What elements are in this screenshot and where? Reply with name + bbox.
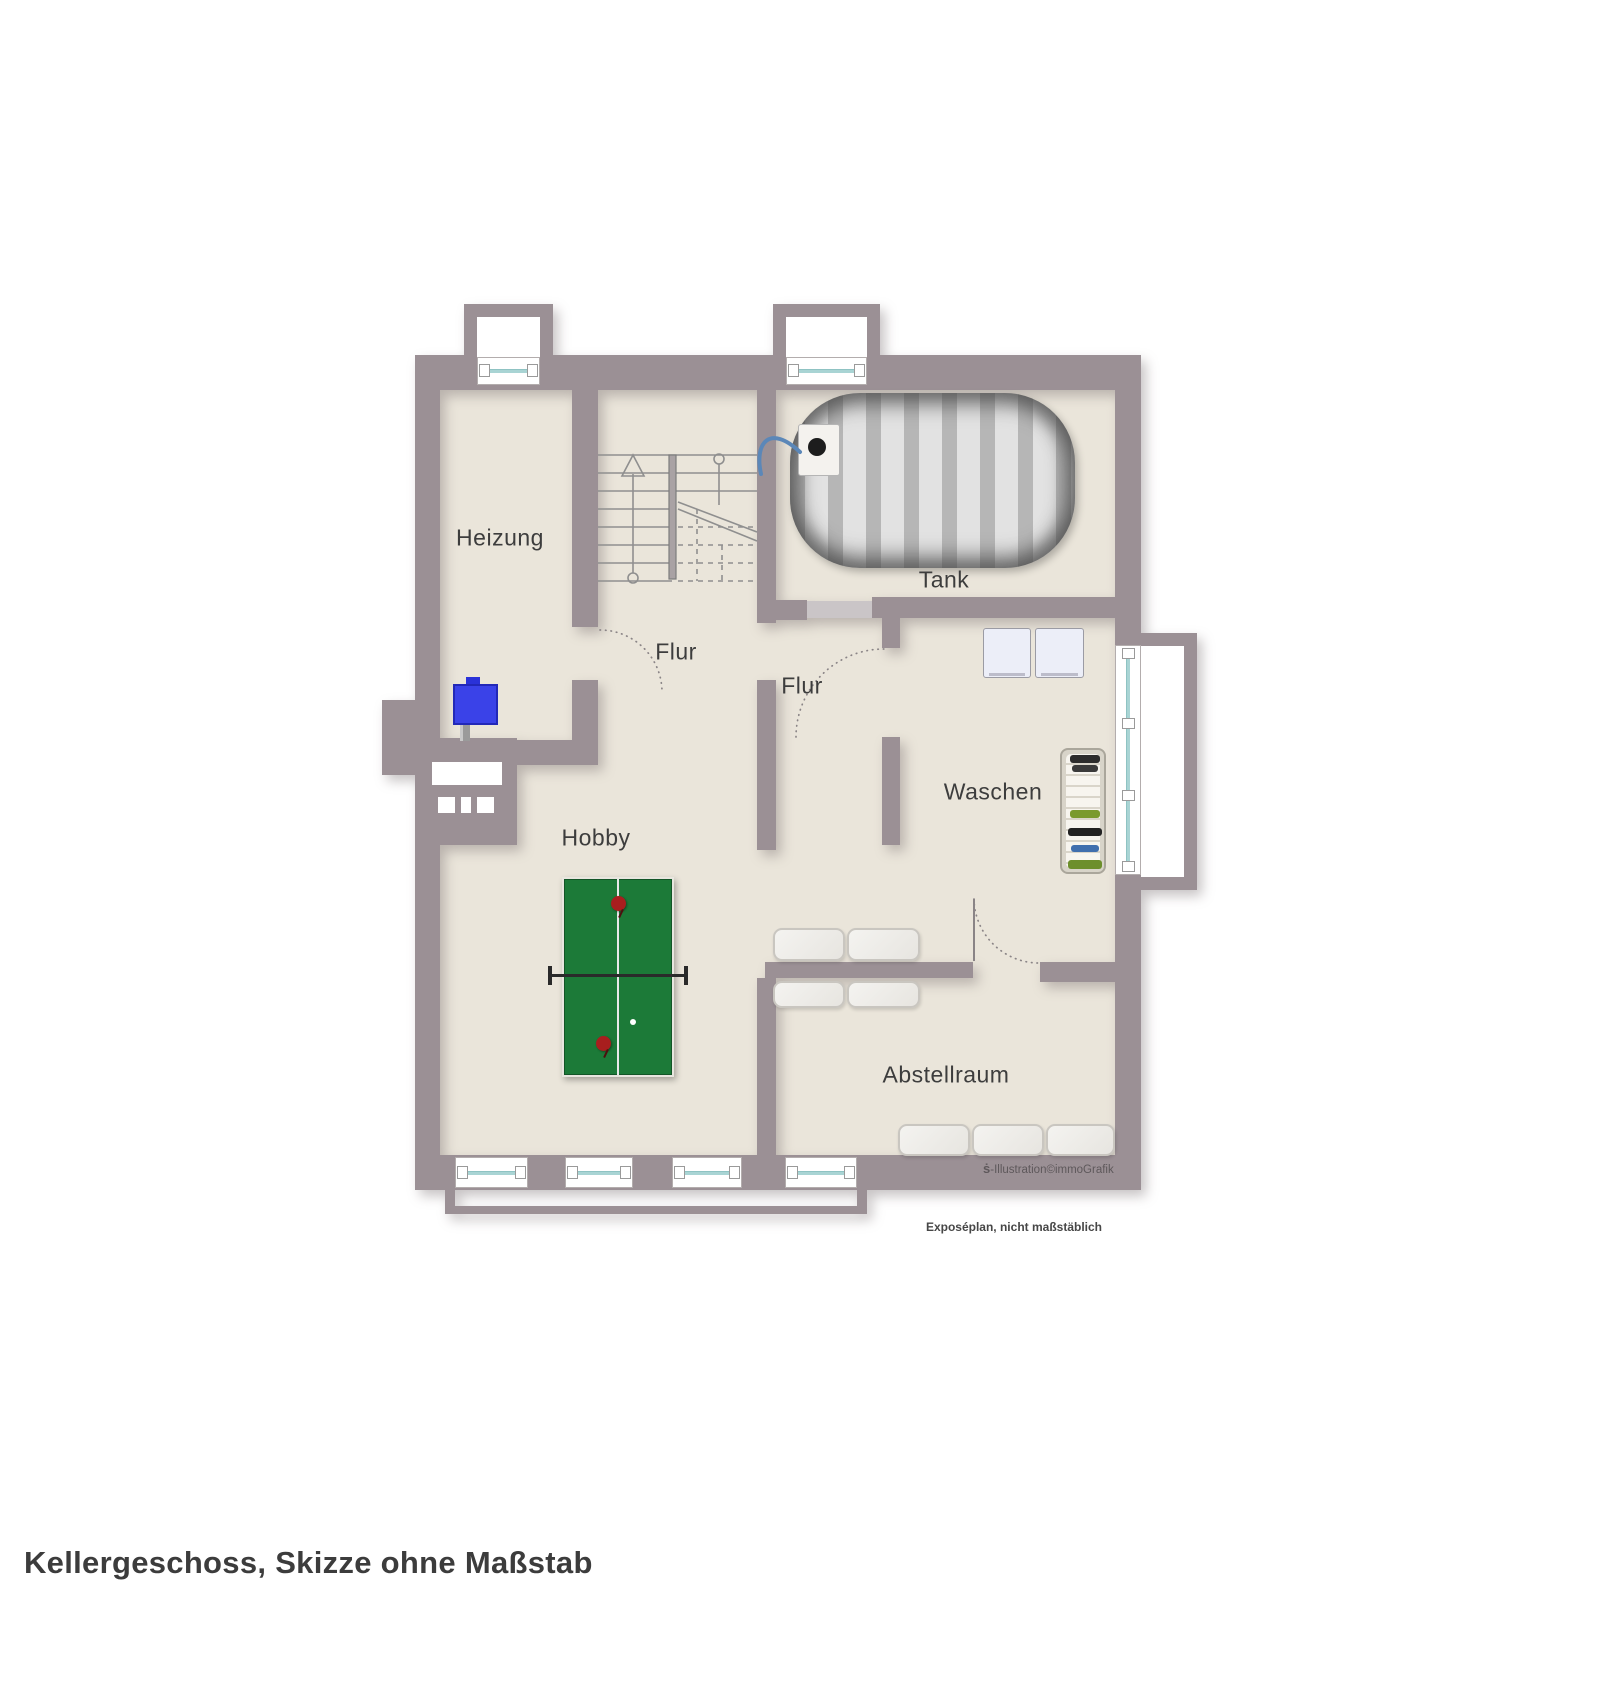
table-net <box>550 974 686 977</box>
oil-tank <box>790 393 1075 568</box>
floor-plan-page: Heizung Flur Flur Tank Waschen Hobby Abs… <box>0 0 1600 1697</box>
window-mullion <box>729 1166 740 1179</box>
lightwell3-right <box>1184 633 1197 890</box>
shoes-green <box>1068 860 1102 869</box>
wall-right-lower <box>1115 875 1141 1190</box>
shoes-dark <box>1070 755 1100 763</box>
wall-stair-left <box>572 390 598 627</box>
window-mullion <box>854 364 865 377</box>
lightwell2-top <box>773 304 880 317</box>
shoes-dark <box>1068 828 1102 836</box>
watermark-text: -Illustration©immoGrafik <box>990 1164 1114 1176</box>
window-bottom-3 <box>672 1157 742 1188</box>
window-mullion <box>479 364 490 377</box>
room-label-flur-upper: Flur <box>655 639 697 666</box>
room-label-tank: Tank <box>919 567 970 594</box>
shelf-unit <box>847 928 920 961</box>
room-label-waschen: Waschen <box>944 779 1043 806</box>
window-mullion <box>567 1166 578 1179</box>
shoes-dark <box>1072 765 1098 772</box>
window-mullion <box>844 1166 855 1179</box>
lightwell3-bottom <box>1141 877 1197 890</box>
window-mullion <box>788 364 799 377</box>
washing-machine <box>983 628 1031 678</box>
window-mullion <box>674 1166 685 1179</box>
window-mullion <box>515 1166 526 1179</box>
window-glass <box>1126 654 1130 866</box>
shoe-rack <box>1060 748 1106 874</box>
window-waschen <box>1115 645 1141 875</box>
window-top-1 <box>477 357 540 385</box>
lightwell1-interior <box>477 317 540 357</box>
window-mullion <box>787 1166 798 1179</box>
chimney-outer <box>382 700 415 775</box>
watermark: ṡ-Illustration©immoGrafik <box>983 1161 1114 1176</box>
wall-flur-lower-left <box>757 680 776 850</box>
table-net-post <box>684 966 688 985</box>
paddle-icon <box>596 1036 611 1051</box>
shoes-green <box>1070 810 1100 818</box>
window-mullion <box>527 364 538 377</box>
window-glass <box>574 1171 624 1175</box>
room-label-flur-lower: Flur <box>781 673 823 700</box>
shelf-unit <box>847 981 920 1008</box>
wall-right-upper <box>1115 355 1141 645</box>
paddle-icon <box>611 896 626 911</box>
window-mullion <box>1122 718 1135 729</box>
shelf-unit <box>773 981 845 1008</box>
wall-abstell-top <box>765 962 973 978</box>
shelf-unit <box>1046 1124 1115 1156</box>
table-net-post <box>548 966 552 985</box>
wall-tank-bottom-right <box>872 597 1117 618</box>
scale-note: Exposéplan, nicht maßstäblich <box>926 1220 1102 1234</box>
window-glass <box>464 1171 519 1175</box>
window-glass <box>486 369 531 373</box>
room-label-hobby: Hobby <box>562 825 631 852</box>
window-top-2 <box>786 357 867 385</box>
chimney-flue-wide <box>432 762 502 785</box>
chimney-flue-1 <box>438 797 455 813</box>
wall-waschen-left-upper <box>882 618 900 648</box>
window-glass <box>794 1171 848 1175</box>
chimney-flue-3 <box>477 797 494 813</box>
wall-stair-right <box>757 390 776 623</box>
window-mullion <box>457 1166 468 1179</box>
chimney-flue-2 <box>461 797 471 813</box>
boiler-pipe <box>460 725 470 741</box>
shelf-unit <box>773 928 845 961</box>
wall-waschen-bottom-right <box>1040 962 1117 982</box>
wall-waschen-left-lower <box>882 737 900 845</box>
window-mullion <box>1122 790 1135 801</box>
washing-machine <box>1035 628 1084 678</box>
window-bottom-2 <box>565 1157 633 1188</box>
window-bottom-4 <box>785 1157 857 1188</box>
oil-tank-cap-circle <box>808 438 826 456</box>
wall-tank-passage <box>807 601 872 618</box>
window-glass <box>681 1171 733 1175</box>
chimney-block <box>415 738 517 845</box>
window-mullion <box>1122 648 1135 659</box>
lightwell3-interior <box>1141 646 1184 877</box>
ball-icon <box>630 1019 636 1025</box>
window-mullion <box>1122 861 1135 872</box>
washing-machine-panel <box>1041 673 1079 676</box>
window-bottom-1 <box>455 1157 528 1188</box>
shelf-unit <box>898 1124 970 1156</box>
page-title: Kellergeschoss, Skizze ohne Maßstab <box>24 1545 593 1581</box>
room-label-abstellraum: Abstellraum <box>883 1062 1010 1089</box>
wall-tank-bottom-left <box>757 600 807 620</box>
lightwell2-right <box>867 304 880 390</box>
lightwell4-bottom <box>445 1206 867 1214</box>
window-mullion <box>620 1166 631 1179</box>
shoes-blue <box>1071 845 1099 852</box>
boiler <box>453 684 498 725</box>
lightwell2-interior <box>786 317 867 357</box>
window-glass <box>795 369 858 373</box>
walls-layer <box>0 0 1600 1697</box>
wall-hobby-abstell <box>757 978 776 1155</box>
shelf-unit <box>972 1124 1044 1156</box>
room-label-heizung: Heizung <box>456 525 544 552</box>
lightwell1-right <box>540 304 553 390</box>
washing-machine-panel <box>989 673 1026 676</box>
